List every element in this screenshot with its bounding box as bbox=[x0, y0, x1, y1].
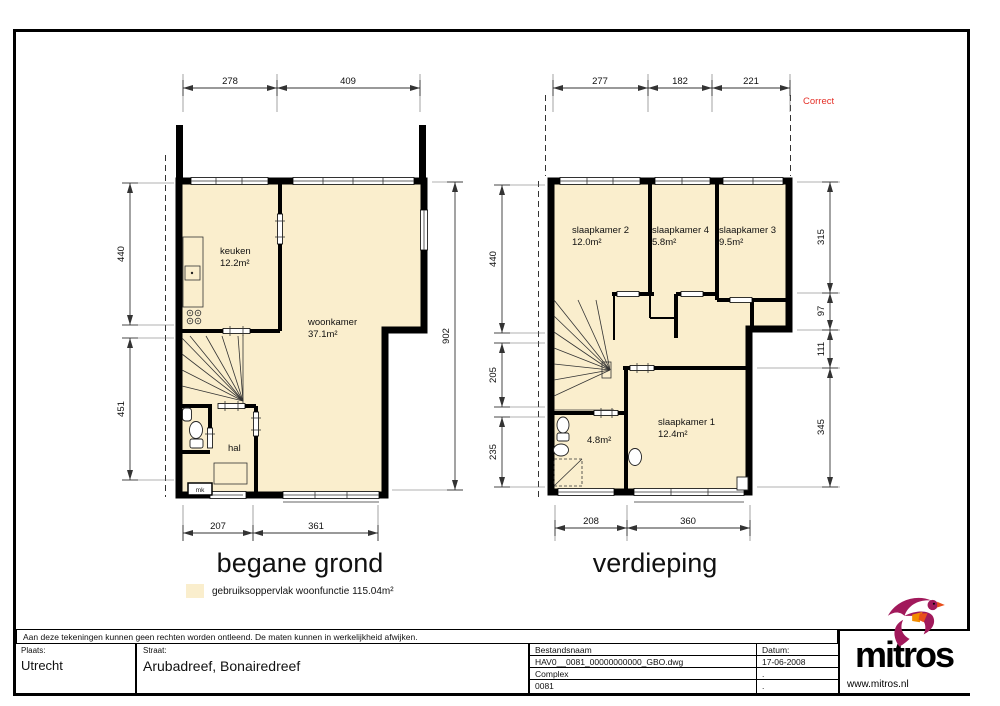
straat-value: Arubadreef, Bonairedreef bbox=[143, 658, 528, 674]
svg-text:361: 361 bbox=[308, 521, 324, 532]
ground-floor-title: begane grond bbox=[180, 548, 420, 579]
complex-label: Complex bbox=[530, 668, 756, 680]
room-area-slaapkamer3: 9.5m² bbox=[719, 237, 743, 248]
room-area-badkamer: 4.8m² bbox=[587, 435, 611, 446]
room-label-slaapkamer2: slaapkamer 2 bbox=[572, 225, 629, 236]
room-label-slaapkamer3: slaapkamer 3 bbox=[719, 225, 776, 236]
room-label-slaapkamer4: slaapkamer 4 bbox=[652, 225, 709, 236]
corner-box bbox=[737, 477, 748, 490]
svg-text:205: 205 bbox=[488, 367, 499, 383]
room-label-slaapkamer1: slaapkamer 1 bbox=[658, 417, 715, 428]
correct-annotation: Correct bbox=[803, 96, 834, 107]
plaats-label: Plaats: bbox=[21, 646, 135, 655]
ground-floor-plan: keuken 12.2m² woonkamer 37.1m² hal mk 27… bbox=[105, 60, 480, 545]
drawing-sheet: keuken 12.2m² woonkamer 37.1m² hal mk 27… bbox=[0, 0, 1000, 706]
svg-text:345: 345 bbox=[816, 419, 827, 435]
svg-text:360: 360 bbox=[680, 516, 696, 527]
titleblock-bestandsnaam: Bestandsnaam HAV0__0081_00000000000_GBO.… bbox=[530, 644, 757, 693]
titleblock-datum: Datum: 17-06-2008 . . bbox=[757, 644, 838, 693]
svg-text:207: 207 bbox=[210, 521, 226, 532]
svg-text:278: 278 bbox=[222, 76, 238, 87]
svg-text:902: 902 bbox=[441, 328, 452, 344]
room-area-slaapkamer1: 12.4m² bbox=[658, 429, 688, 440]
svg-text:97: 97 bbox=[816, 306, 827, 317]
titleblock-straat: Straat: Arubadreef, Bonairedreef bbox=[137, 644, 530, 693]
svg-text:182: 182 bbox=[672, 76, 688, 87]
legend-color-swatch bbox=[186, 584, 204, 598]
gf-exterior-walls bbox=[179, 181, 424, 495]
svg-text:315: 315 bbox=[816, 229, 827, 245]
svg-text:235: 235 bbox=[488, 444, 499, 460]
svg-text:277: 277 bbox=[592, 76, 608, 87]
room-area-woonkamer: 37.1m² bbox=[308, 329, 338, 340]
bestandsnaam-value: HAV0__0081_00000000000_GBO.dwg bbox=[530, 656, 756, 668]
svg-text:221: 221 bbox=[743, 76, 759, 87]
upper-floor-title: verdieping bbox=[545, 548, 765, 579]
datum-value: 17-06-2008 bbox=[757, 656, 838, 668]
room-label-mk: mk bbox=[196, 487, 205, 494]
svg-text:440: 440 bbox=[488, 251, 499, 267]
datum-dot1: . bbox=[757, 668, 838, 680]
mitros-bird-icon bbox=[884, 594, 948, 648]
room-area-keuken: 12.2m² bbox=[220, 258, 250, 269]
datum-label: Datum: bbox=[757, 644, 838, 656]
svg-text:111: 111 bbox=[816, 342, 827, 356]
titleblock-plaats: Plaats: Utrecht bbox=[16, 644, 137, 693]
mitros-url: www.mitros.nl bbox=[847, 679, 909, 690]
room-area-slaapkamer2: 12.0m² bbox=[572, 237, 602, 248]
svg-text:451: 451 bbox=[116, 401, 127, 417]
svg-text:440: 440 bbox=[116, 246, 127, 262]
disclaimer-text: Aan deze tekeningen kunnen geen rechten … bbox=[16, 629, 838, 644]
datum-dot2: . bbox=[757, 680, 838, 692]
bestandsnaam-label: Bestandsnaam bbox=[530, 644, 756, 656]
sink-icon-slaapkamer1 bbox=[629, 449, 642, 466]
upper-floor-plan: slaapkamer 2 12.0m² slaapkamer 4 5.8m² s… bbox=[460, 60, 860, 545]
room-label-keuken: keuken bbox=[220, 246, 251, 257]
legend-label: gebruiksoppervlak woonfunctie 115.04m² bbox=[212, 586, 394, 597]
svg-text:409: 409 bbox=[340, 76, 356, 87]
room-label-woonkamer: woonkamer bbox=[307, 317, 357, 328]
complex-value: 0081 bbox=[530, 680, 756, 692]
straat-label: Straat: bbox=[143, 646, 528, 655]
room-label-hal: hal bbox=[228, 443, 241, 454]
plaats-value: Utrecht bbox=[21, 658, 135, 673]
room-area-slaapkamer4: 5.8m² bbox=[652, 237, 676, 248]
svg-text:208: 208 bbox=[583, 516, 599, 527]
